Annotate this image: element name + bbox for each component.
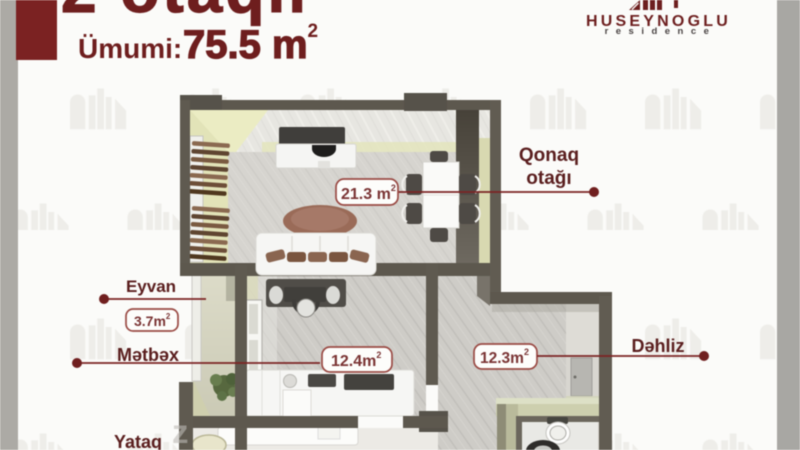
svg-text:Yataq: Yataq xyxy=(114,432,162,450)
svg-text:Dəhliz: Dəhliz xyxy=(631,336,684,356)
svg-text:z: z xyxy=(172,413,189,450)
svg-text:Qonaq: Qonaq xyxy=(519,145,579,166)
svg-text:otağı: otağı xyxy=(526,168,571,189)
svg-text:Mətbəx: Mətbəx xyxy=(117,345,179,365)
svg-text:12.4m2: 12.4m2 xyxy=(331,350,381,370)
svg-text:3.7m2: 3.7m2 xyxy=(134,312,171,329)
svg-text:Eyvan: Eyvan xyxy=(126,277,176,296)
svg-text:21.3 m2: 21.3 m2 xyxy=(341,183,396,203)
svg-text:12.3m2: 12.3m2 xyxy=(480,347,529,367)
